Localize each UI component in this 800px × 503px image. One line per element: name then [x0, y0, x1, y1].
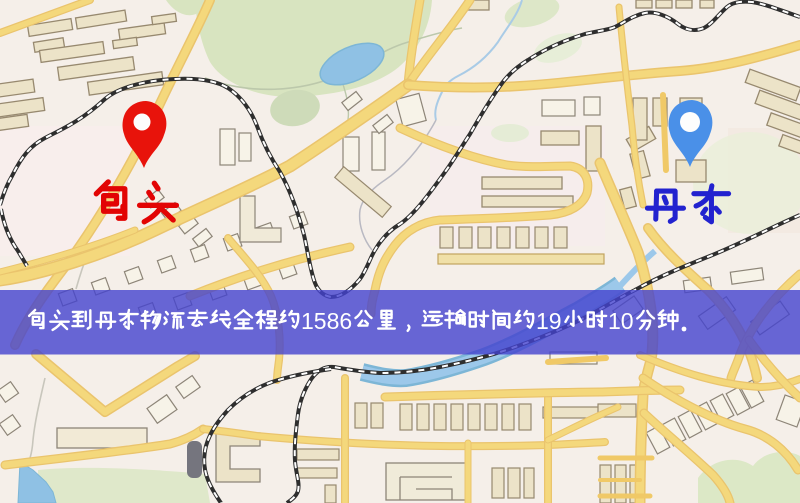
svg-text:10: 10: [608, 308, 634, 334]
svg-text:1586: 1586: [301, 308, 352, 334]
svg-text:19: 19: [536, 308, 562, 334]
